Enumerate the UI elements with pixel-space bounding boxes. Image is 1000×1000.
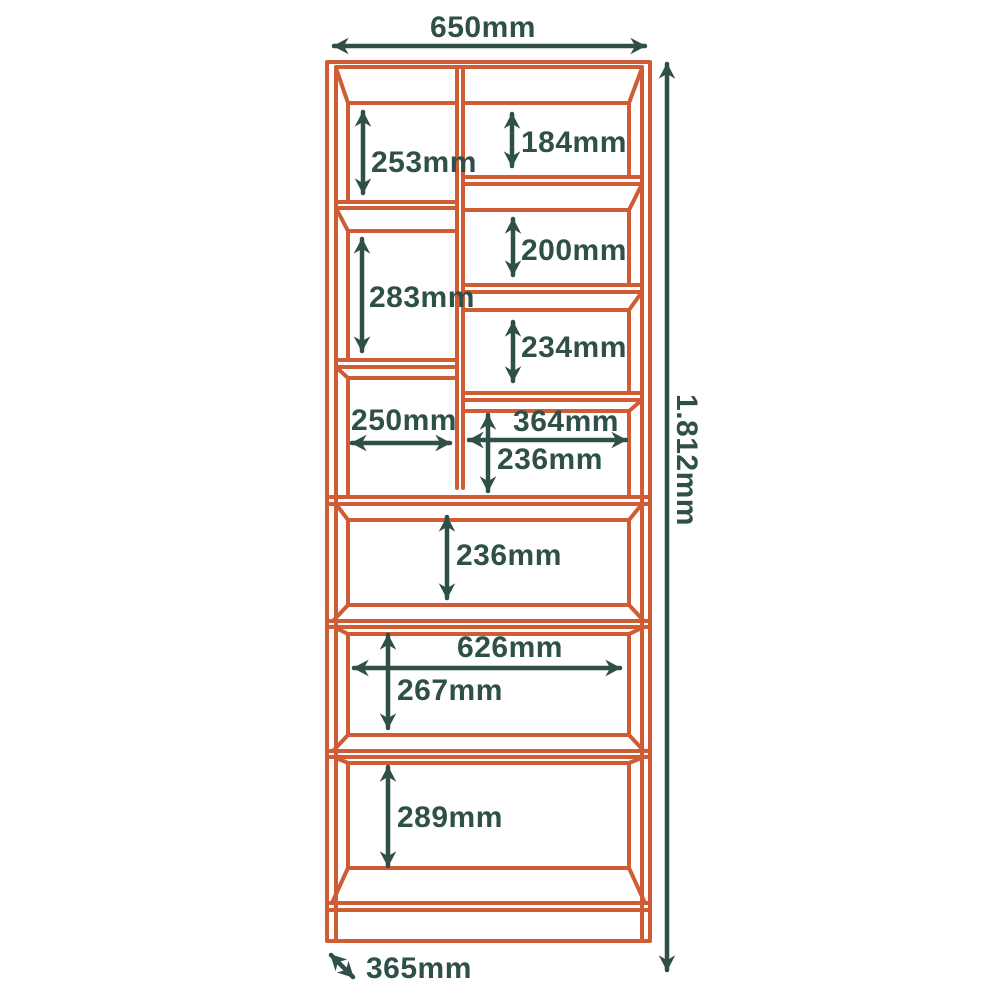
label-right-4-width: 364mm <box>513 405 619 438</box>
label-overall-height: 1.812mm <box>670 394 703 526</box>
label-full-2-width: 626mm <box>457 631 563 664</box>
label-full-1-height: 236mm <box>456 539 562 572</box>
label-right-3-height: 234mm <box>521 331 627 364</box>
label-overall-width: 650mm <box>430 11 536 44</box>
label-left-2-height: 283mm <box>369 281 475 314</box>
arrow-overall-depth <box>331 955 353 977</box>
label-right-2-height: 200mm <box>521 234 627 267</box>
bookcase-dimension-diagram: 650mm 1.812mm 365mm 253mm 283mm 250mm 18… <box>0 0 1000 1000</box>
label-full-3-height: 289mm <box>397 801 503 834</box>
label-left-3-width: 250mm <box>351 404 457 437</box>
label-right-1-height: 184mm <box>521 126 627 159</box>
middle-full-shelf <box>330 497 648 504</box>
cabinet-center-divider <box>457 67 463 488</box>
label-left-1-height: 253mm <box>371 146 477 179</box>
cabinet-floor-and-plinth <box>330 868 648 910</box>
label-full-2-height: 267mm <box>397 674 503 707</box>
label-right-4-height: 236mm <box>497 443 603 476</box>
diagram-canvas: 650mm 1.812mm 365mm 253mm 283mm 250mm 18… <box>0 0 1000 1000</box>
label-overall-depth: 365mm <box>366 952 472 985</box>
